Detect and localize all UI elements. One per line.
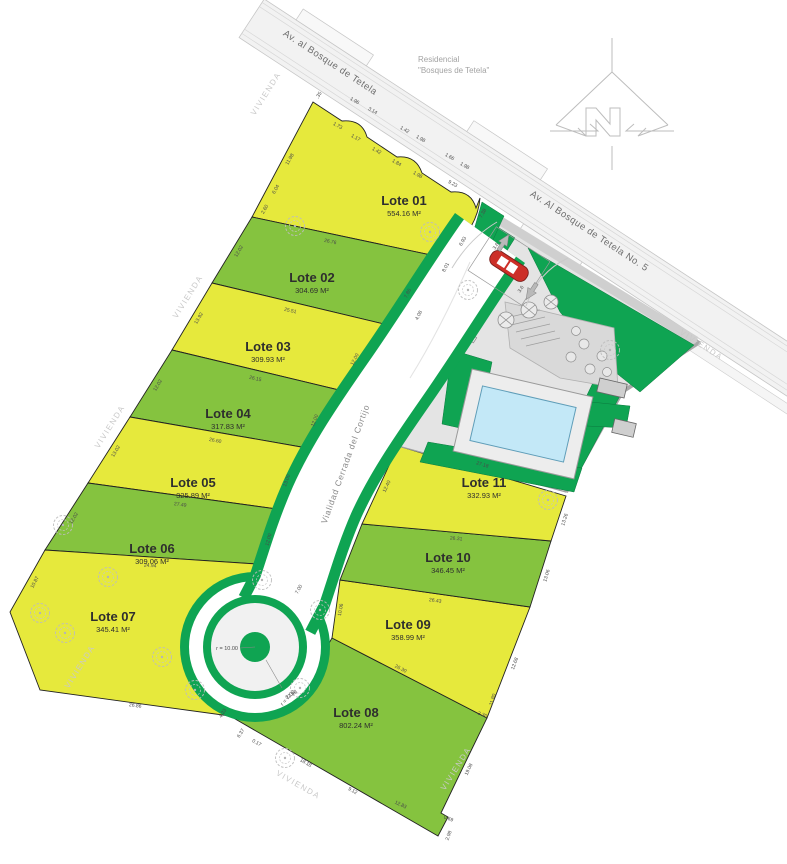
lot-area-label: 346.45 M² bbox=[431, 566, 465, 575]
lot-label: Lote 08 bbox=[333, 705, 379, 720]
dimension-label: 2.98 bbox=[445, 830, 454, 841]
lot-area-label: 345.41 M² bbox=[96, 625, 130, 634]
lot-area-label: 325.89 M² bbox=[176, 491, 210, 500]
lot-label: Lote 09 bbox=[385, 617, 431, 632]
lot-label: Lote 05 bbox=[170, 475, 216, 490]
site-plan: Av. al Bosque de Tetela Av. Al Bosque de… bbox=[0, 0, 787, 864]
culdesac-outer-radius-label: r = 10.00 bbox=[216, 646, 238, 652]
development-label: Residencial "Bosques de Tetela" bbox=[418, 55, 490, 75]
site-plan-svg: Av. al Bosque de Tetela Av. Al Bosque de… bbox=[0, 0, 787, 864]
lot-label: Lote 06 bbox=[129, 541, 175, 556]
dimension-label: 13.06 bbox=[542, 569, 551, 583]
lot-area-label: 332.93 M² bbox=[467, 491, 501, 500]
dimension-label: 19.08 bbox=[464, 762, 475, 776]
lot-area-label: 309.93 M² bbox=[251, 355, 285, 364]
lot-label: Lote 01 bbox=[381, 193, 427, 208]
lot-label: Lote 02 bbox=[289, 270, 335, 285]
vivienda-watermark: VIVIENDA bbox=[249, 70, 283, 117]
lot-area-label: 358.99 M² bbox=[391, 633, 425, 642]
dimension-label: 24.94 bbox=[144, 563, 157, 570]
lot-label: Lote 07 bbox=[90, 609, 136, 624]
development-label-line1: Residencial bbox=[418, 55, 460, 64]
lot-label: Lote 03 bbox=[245, 339, 291, 354]
lot-label: Lote 10 bbox=[425, 550, 471, 565]
dimension-label: 26.86 bbox=[129, 702, 142, 710]
dimension-label: 26.31 bbox=[450, 535, 463, 542]
lot-area-label: 554.16 M² bbox=[387, 209, 421, 218]
lot-area-label: 304.69 M² bbox=[295, 286, 329, 295]
dimension-label: 9.23 bbox=[447, 179, 459, 189]
lot-area-label: 317.83 M² bbox=[211, 422, 245, 431]
north-arrow-icon bbox=[550, 38, 674, 170]
lot-label: Lote 11 bbox=[462, 475, 507, 490]
dimension-label: 13.26 bbox=[560, 513, 570, 527]
vivienda-watermark: VIVIENDA bbox=[275, 769, 322, 801]
dimension-label: 6.37 bbox=[236, 728, 246, 740]
lot-area-label: 802.24 M² bbox=[339, 721, 373, 730]
lot-label: Lote 04 bbox=[205, 406, 251, 421]
dimension-label: 0.17 bbox=[251, 738, 263, 748]
dimension-label: 12.68 bbox=[510, 657, 520, 671]
development-label-line2: "Bosques de Tetela" bbox=[418, 66, 490, 75]
